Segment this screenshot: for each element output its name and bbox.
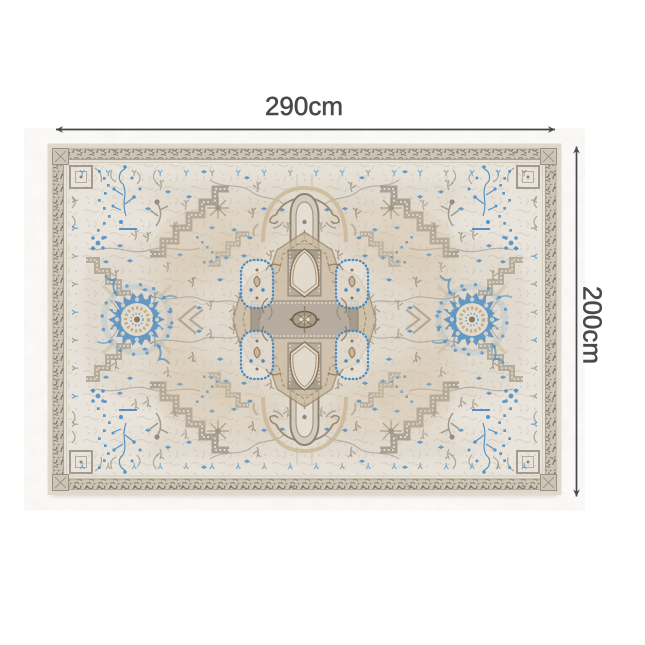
- svg-text:200cm: 200cm: [578, 286, 608, 364]
- svg-text:290cm: 290cm: [265, 91, 343, 121]
